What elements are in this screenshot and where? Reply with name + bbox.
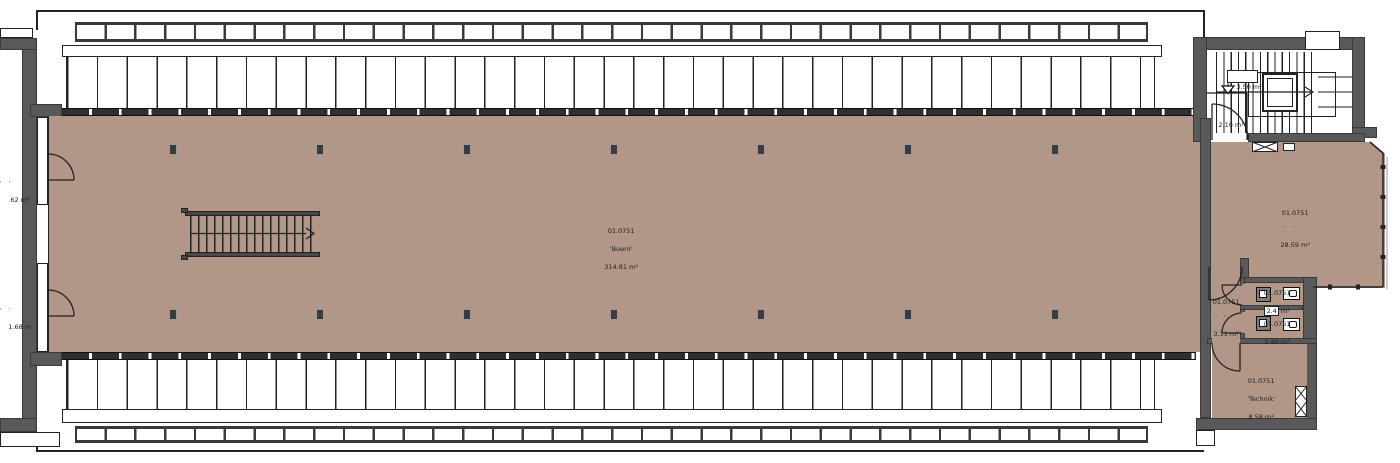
wc2-number: 01.0751 [1264, 320, 1291, 328]
balcony-upper-name: ' ' [0, 182, 28, 187]
balcony-lower-area: 1.68 m [8, 323, 31, 331]
room-label-corridor: 01.0751 ' ' 3.11 m² [1203, 289, 1241, 348]
buero-number: 01.0751 [608, 227, 635, 235]
meeting-number: 01.0751 [1282, 209, 1309, 217]
buero-area: 314.81 m² [604, 263, 638, 271]
technik-name: 'Technik' [1247, 395, 1275, 403]
buero-name: 'Buero' [610, 245, 633, 253]
stairwell-winder-treads [1318, 77, 1352, 107]
floor-plan: 01.0751 'Buero' 314.81 m² 01.0751 ' ' 28… [0, 0, 1400, 463]
room-label-balcony-upper: ' ' .62 m² [0, 164, 28, 214]
meeting-name: ' ' [1251, 227, 1331, 232]
balcony-upper-area: .62 m² [8, 196, 29, 204]
room-label-meeting: 01.0751 ' ' 28.59 m² [1251, 200, 1331, 259]
entry-lobby-area: 2.10 m² [1218, 121, 1243, 129]
room-label-buero: 01.0751 'Buero' 314.81 m² [567, 218, 667, 281]
meeting-area: 28.59 m² [1280, 241, 1310, 249]
door-arc [48, 154, 74, 316]
technik-area: 8.58 m² [1248, 413, 1273, 421]
stair-landing-area: 3.50 m² [1236, 83, 1261, 91]
plan-linework [0, 0, 1400, 463]
technik-number: 01.0751 [1248, 377, 1275, 385]
wc1-number: 01.0751 [1264, 289, 1291, 297]
room-label-entry-lobby: 2.10 m² [1210, 112, 1244, 139]
corridor-area: 3.11 m² [1213, 330, 1238, 338]
corridor-name: ' ' [1203, 316, 1241, 321]
stair-direction-arrow-icon [190, 228, 314, 239]
corridor-number: 01.0751 [1213, 298, 1240, 306]
room-label-technik: 01.0751 'Technik' 8.58 m² [1217, 368, 1297, 431]
room-label-balcony-lower: ' ' 1.68 m [0, 291, 28, 341]
wc2-area: 2.48 m² [1264, 338, 1289, 346]
room-label-wc2: 01.0751 2.48 m² [1247, 311, 1299, 356]
room-label-stair-landing: 3.50 m² [1227, 70, 1258, 83]
balcony-lower-name: ' ' [0, 309, 28, 314]
